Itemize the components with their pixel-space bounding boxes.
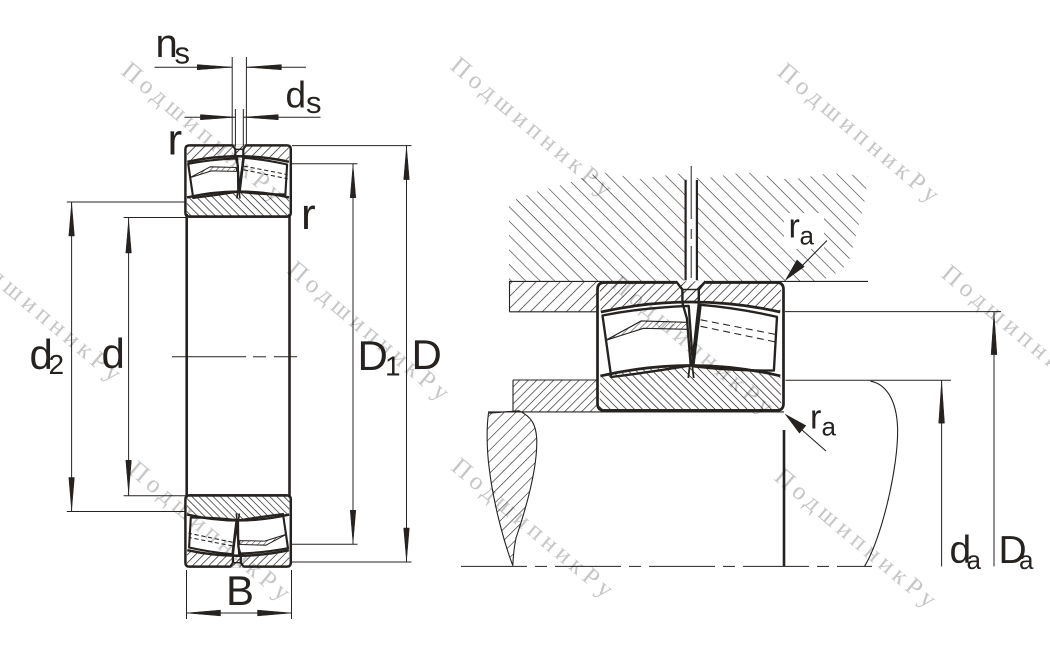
svg-text:a: a: [822, 412, 837, 442]
svg-text:a: a: [800, 221, 815, 251]
svg-text:d: d: [286, 75, 307, 116]
svg-text:2: 2: [49, 349, 65, 380]
svg-text:r: r: [301, 190, 316, 239]
svg-text:r: r: [810, 399, 821, 437]
svg-text:r: r: [789, 207, 800, 245]
svg-text:a: a: [967, 545, 982, 575]
svg-text:a: a: [1019, 545, 1034, 575]
svg-text:s: s: [175, 36, 191, 71]
svg-text:s: s: [306, 85, 322, 120]
